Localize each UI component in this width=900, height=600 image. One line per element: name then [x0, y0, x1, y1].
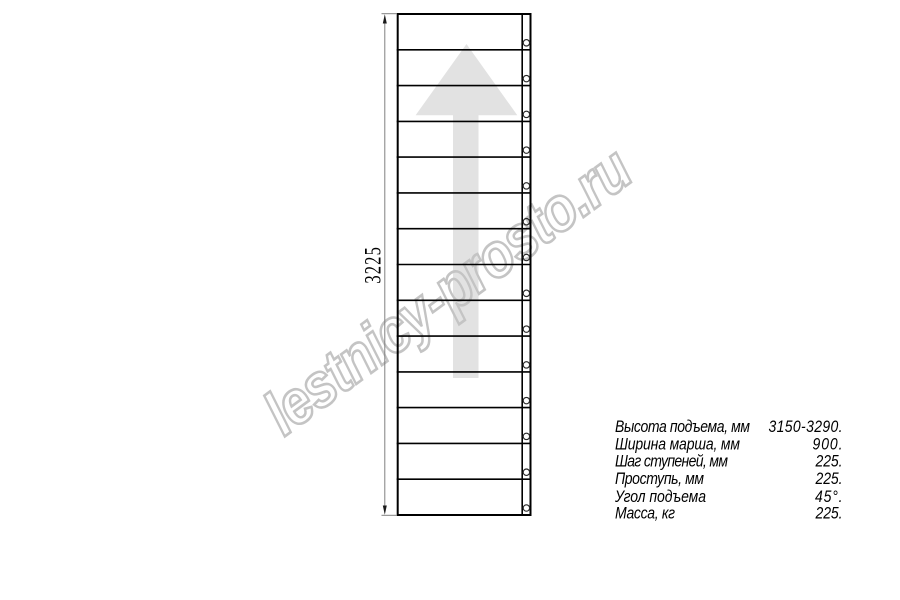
- svg-text:225.: 225.: [815, 452, 843, 470]
- svg-text:Шаг ступеней, мм: Шаг ступеней, мм: [615, 452, 728, 470]
- svg-text:225.: 225.: [815, 504, 843, 522]
- svg-text:Ширина марша, мм: Ширина марша, мм: [615, 435, 740, 453]
- svg-text:225.: 225.: [815, 470, 843, 488]
- svg-text:45°.: 45°.: [815, 488, 843, 506]
- svg-text:Масса, кг: Масса, кг: [615, 504, 675, 522]
- svg-text:lestnicy-prosto.ru: lestnicy-prosto.ru: [251, 134, 644, 449]
- svg-text:Проступь, мм: Проступь, мм: [615, 470, 704, 488]
- svg-text:Высота подъема, мм: Высота подъема, мм: [615, 418, 750, 436]
- svg-text:Угол подъема: Угол подъема: [614, 488, 706, 506]
- svg-text:900.: 900.: [813, 435, 843, 453]
- svg-text:3225: 3225: [361, 247, 386, 284]
- svg-text:3150-3290.: 3150-3290.: [769, 418, 843, 436]
